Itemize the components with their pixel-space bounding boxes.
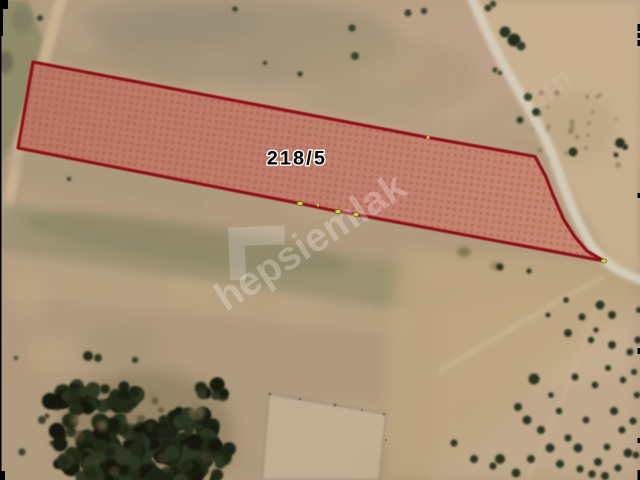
svg-text:218/5: 218/5 bbox=[267, 148, 327, 170]
